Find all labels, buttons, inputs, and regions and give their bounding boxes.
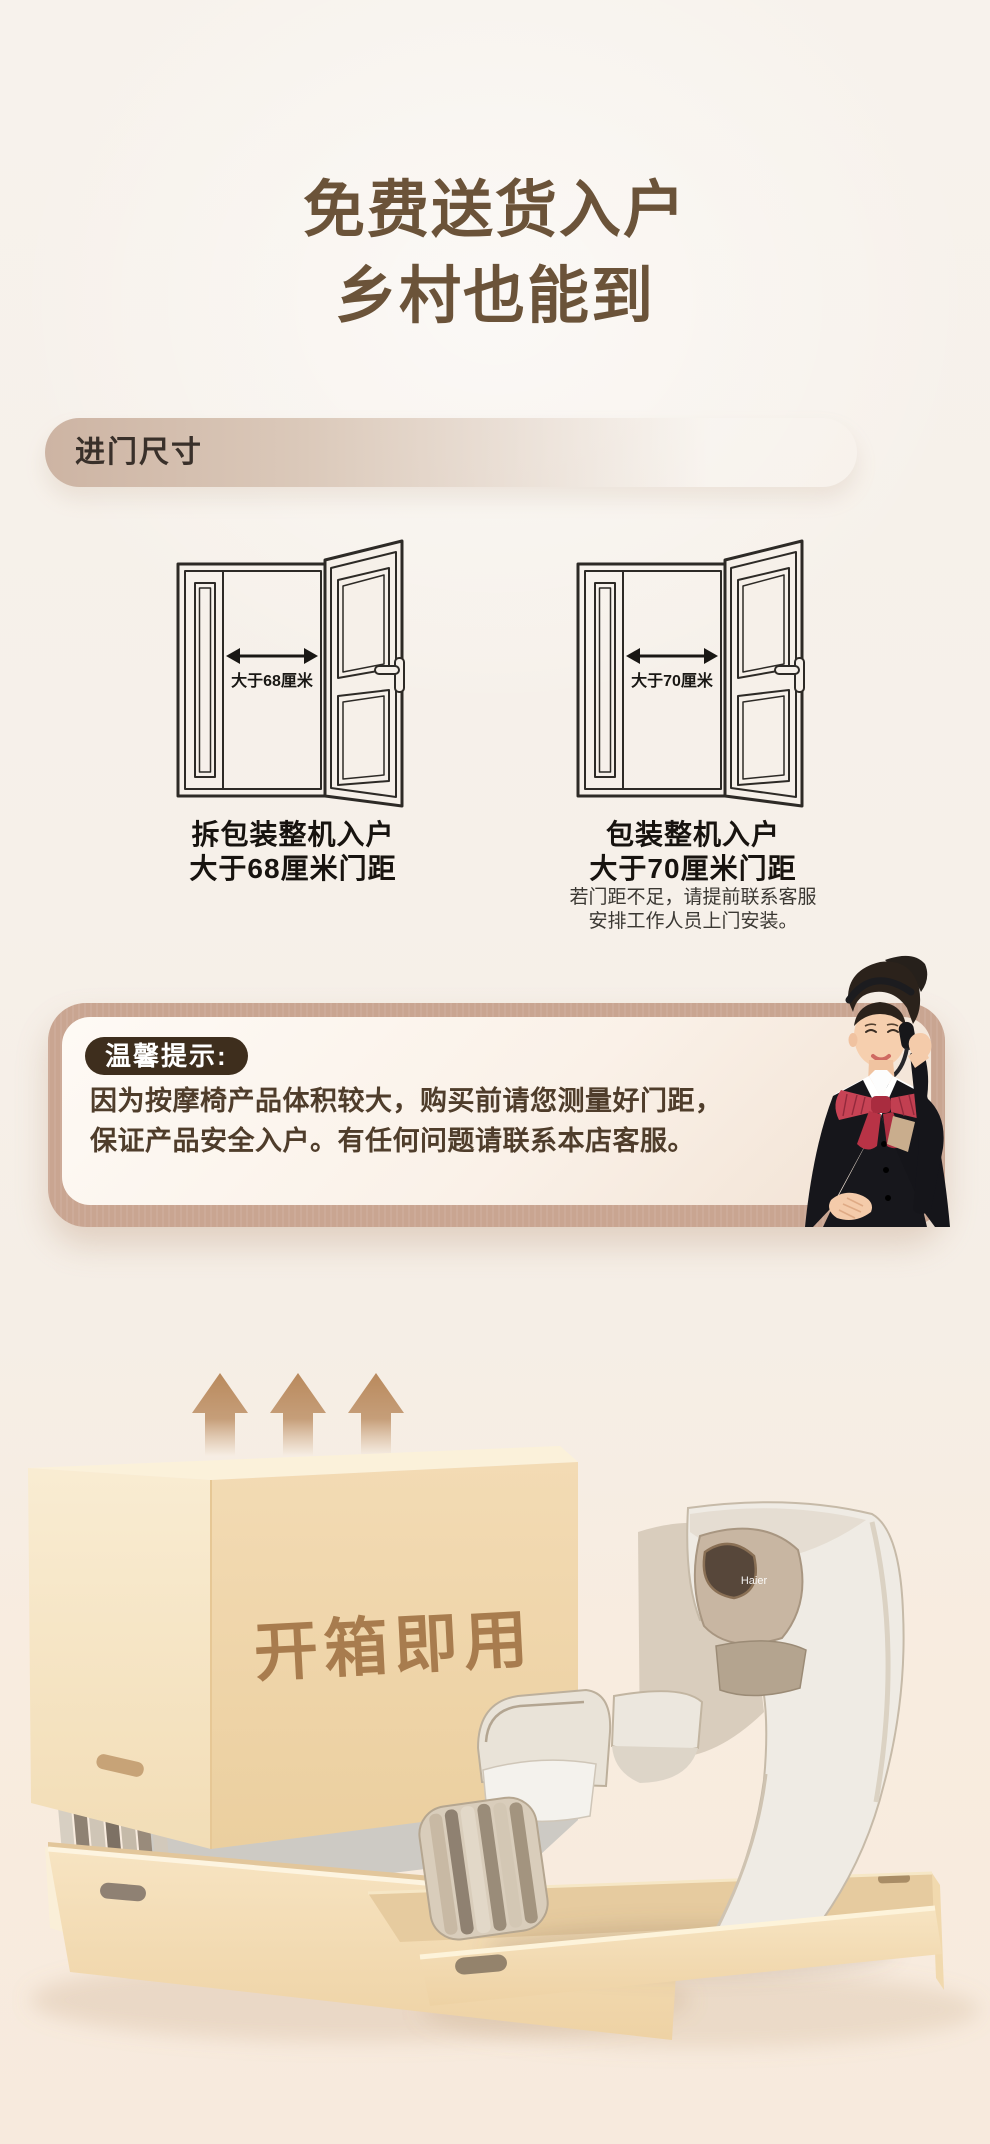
width-arrow-icon [626,648,718,664]
door-illustration-packed: 大于70厘米 [568,538,818,810]
warm-tip-body: 因为按摩椅产品体积较大，购买前请您测量好门距， 保证产品安全入户。有任何问题请联… [90,1081,770,1161]
door-measure-label: 大于68厘米 [231,671,314,690]
door-handle-icon [795,658,804,692]
lift-arrows-icon [192,1373,404,1456]
caption-line: 大于70厘米门距 [558,852,828,886]
tip-body-line: 保证产品安全入户。有任何问题请联系本店客服。 [90,1121,770,1161]
door-caption-unpacked: 拆包装整机入户 大于68厘米门距 [168,818,418,886]
caption-line: 包装整机入户 [558,818,828,852]
note-line: 安排工作人员上门安装。 [535,910,851,934]
door-note: 若门距不足，请提前联系客服 安排工作人员上门安装。 [535,886,851,934]
unboxing-scene: 开箱即用 [0,1350,990,2144]
warm-tip-label: 温馨提示: [85,1037,248,1075]
door-illustration-unpacked: 大于68厘米 [168,538,418,810]
chair-legrest [416,1794,552,1943]
width-arrow-icon [226,648,318,664]
caption-line: 大于68厘米门距 [168,852,418,886]
title-line-2: 乡村也能到 [0,254,990,340]
title-line-1: 免费送货入户 [0,168,990,254]
tip-body-line: 因为按摩椅产品体积较大，购买前请您测量好门距， [90,1081,770,1121]
door-handle-icon [395,658,404,692]
page-title: 免费送货入户 乡村也能到 [0,168,990,340]
agent-face [849,1002,907,1067]
caption-line: 拆包装整机入户 [168,818,418,852]
section-badge: 进门尺寸 [45,418,857,487]
note-line: 若门距不足，请提前联系客服 [535,886,851,910]
customer-service-agent-photo [735,948,960,1227]
door-measure-label: 大于70厘米 [631,671,714,690]
door-caption-packed: 包装整机入户 大于70厘米门距 [558,818,828,886]
section-badge-label: 进门尺寸 [45,418,857,487]
promo-page: 免费送货入户 乡村也能到 进门尺寸 大于68厘米 [0,0,990,2144]
chair-brand-logo: Haier [741,1575,768,1587]
box-slogan: 开箱即用 [252,1603,535,1690]
